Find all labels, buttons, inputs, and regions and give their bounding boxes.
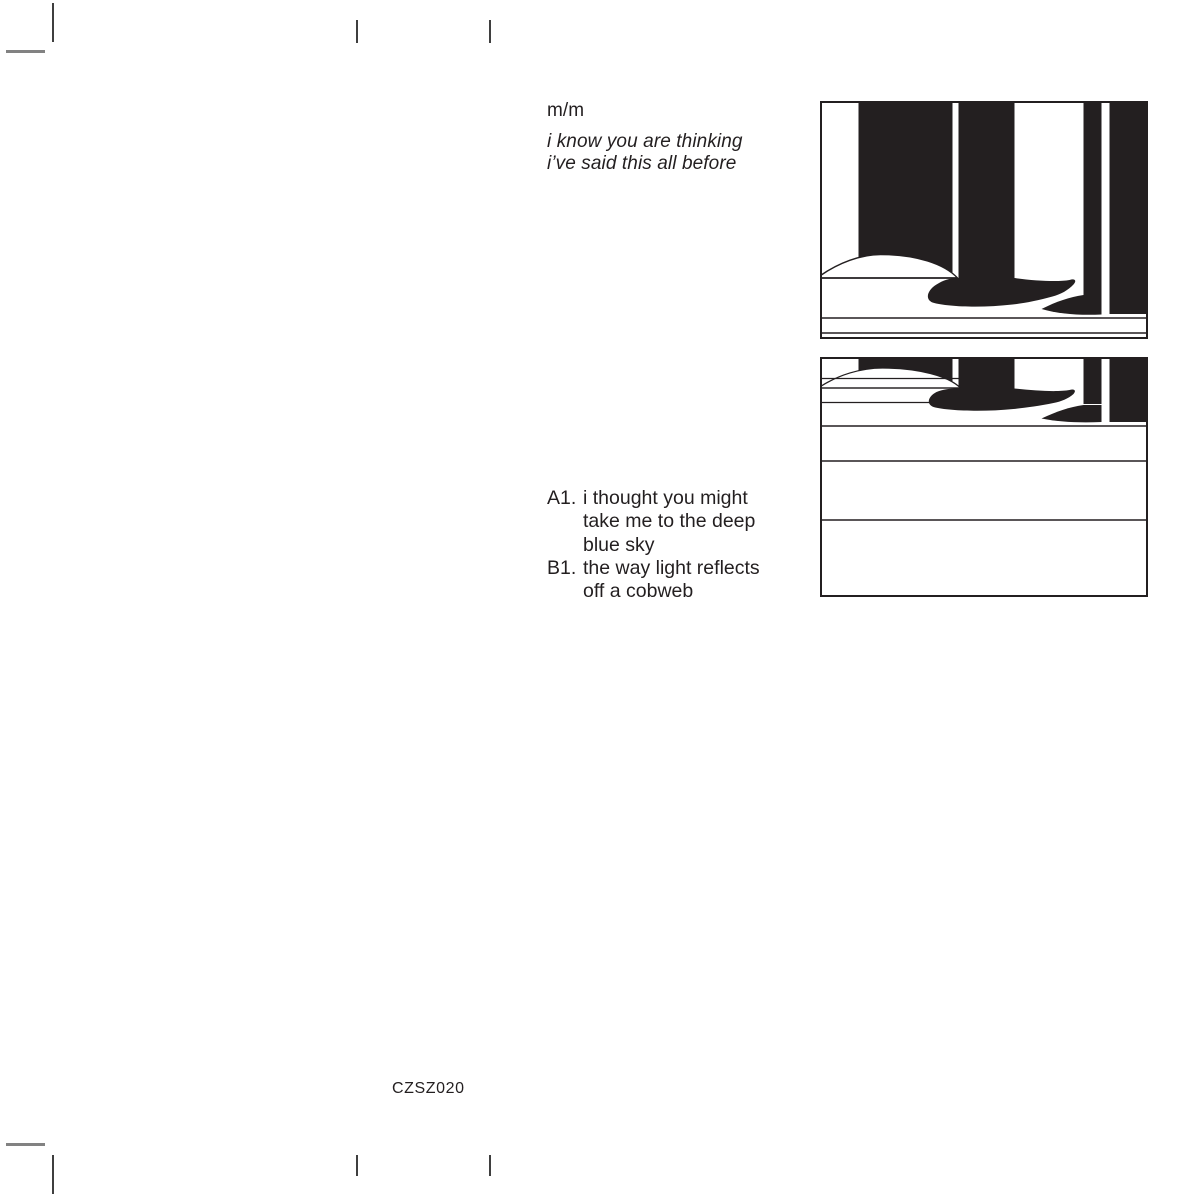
artist-name: m/m [547, 100, 743, 122]
art-bar-3 [1084, 358, 1102, 404]
art-bar-4 [1110, 358, 1148, 422]
track-number [547, 510, 583, 533]
crop-mark-bottom-left-horizontal [6, 1143, 45, 1146]
art-bar-2 [959, 102, 1015, 279]
release-title-line-1: i know you are thinking [547, 131, 743, 153]
art-bar-2 [959, 358, 1015, 389]
track-number [547, 534, 583, 557]
track-number: B1. [547, 557, 583, 580]
front-cover-artwork [820, 101, 1148, 339]
release-title-line-2: i’ve said this all before [547, 153, 743, 175]
crop-mark-top-tick-1 [356, 20, 358, 43]
crop-mark-bottom-left-vertical [52, 1155, 54, 1194]
crop-mark-top-tick-2 [489, 20, 491, 43]
art-bar-4 [1110, 102, 1148, 314]
crop-mark-bottom-tick-2 [489, 1155, 491, 1176]
tracklist: A1. i thought you might take me to the d… [547, 487, 760, 603]
back-cover-artwork [820, 357, 1148, 598]
release-header: m/m i know you are thinking i’ve said th… [547, 100, 743, 175]
track-number: A1. [547, 487, 583, 510]
crop-mark-bottom-tick-1 [356, 1155, 358, 1176]
track-row: B1. the way light reflects [547, 557, 760, 580]
crop-mark-top-left-vertical [52, 3, 54, 42]
record-sleeve-layout: { "canvas": { "background": "#ffffff", "… [0, 0, 1200, 1200]
track-number [547, 580, 583, 603]
art-bar-3 [1084, 102, 1102, 296]
track-title-line: the way light reflects [583, 557, 760, 580]
track-title-line: off a cobweb [583, 580, 693, 603]
track-title-line: blue sky [583, 534, 655, 557]
track-row: A1. i thought you might [547, 487, 760, 510]
track-row: off a cobweb [547, 580, 760, 603]
art-bar-1 [859, 102, 953, 279]
track-title-line: i thought you might [583, 487, 748, 510]
track-row: take me to the deep [547, 510, 760, 533]
track-row: blue sky [547, 534, 760, 557]
track-title-line: take me to the deep [583, 510, 755, 533]
crop-mark-top-left-horizontal [6, 50, 45, 53]
catalog-number: CZSZ020 [392, 1080, 465, 1098]
